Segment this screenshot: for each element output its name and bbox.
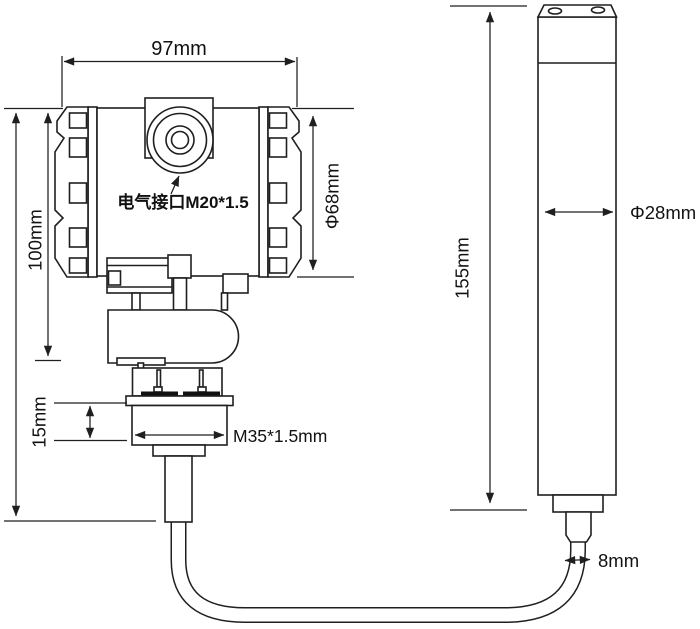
probe-drawing: [538, 5, 617, 542]
dimension-housing-width: 97mm: [62, 38, 297, 107]
probe-top-hole-right: [592, 7, 605, 13]
neck-section: [133, 368, 223, 396]
right-end-cap: [268, 107, 301, 277]
left-cap-band: [88, 107, 97, 277]
flange-plate: [126, 396, 233, 406]
flange-height-label: 15mm: [29, 396, 50, 447]
collar: [153, 445, 205, 456]
connecting-cable: [179, 514, 579, 615]
transmitter-drawing: [55, 98, 301, 456]
housing-width-label: 97mm: [151, 38, 207, 60]
probe-step: [553, 495, 603, 512]
thread-label: M35*1.5mm: [233, 426, 327, 446]
dimension-drawing-page: 97mm 100mm 15mm Φ68mm 电气接口M20*1.5 M35*1.…: [0, 0, 700, 629]
dimension-probe-length: 155mm: [450, 6, 527, 510]
probe-top-hole-left: [549, 8, 562, 14]
thread-nut-body: [132, 406, 227, 446]
left-end-cap: [55, 107, 88, 277]
housing-height-label: 100mm: [25, 209, 46, 271]
process-boss: [108, 310, 239, 363]
probe-body: [538, 17, 616, 495]
cable-entry-tube: [165, 456, 192, 522]
electrical-entry-port: [147, 107, 213, 173]
diagram-canvas: 97mm 100mm 15mm Φ68mm 电气接口M20*1.5 M35*1.…: [0, 0, 700, 629]
probe-diameter-label: Φ28mm: [630, 202, 696, 223]
housing-diameter-label: Φ68mm: [322, 163, 343, 229]
cable-diameter-label: 8mm: [598, 550, 639, 571]
electrical-interface-label: 电气接口M20*1.5: [117, 192, 248, 212]
probe-length-label: 155mm: [452, 237, 473, 299]
right-cap-band: [259, 107, 268, 277]
probe-cable-gland: [566, 512, 591, 542]
dimension-flange-height: 15mm: [29, 396, 128, 447]
